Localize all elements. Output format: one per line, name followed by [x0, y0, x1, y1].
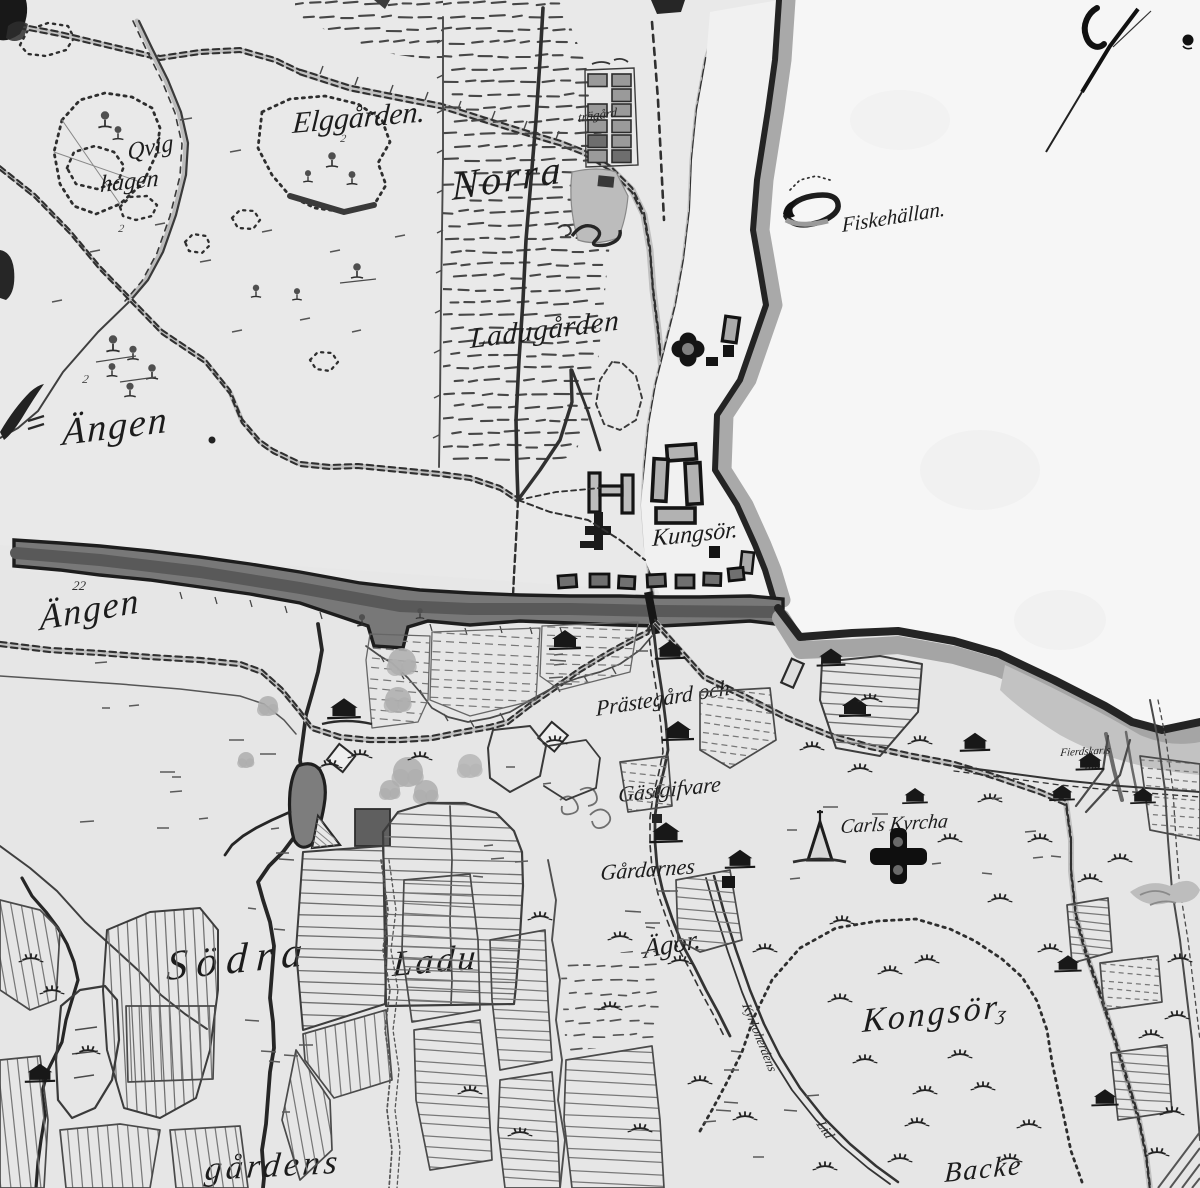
svg-text:gårdens: gårdens — [203, 1144, 343, 1188]
